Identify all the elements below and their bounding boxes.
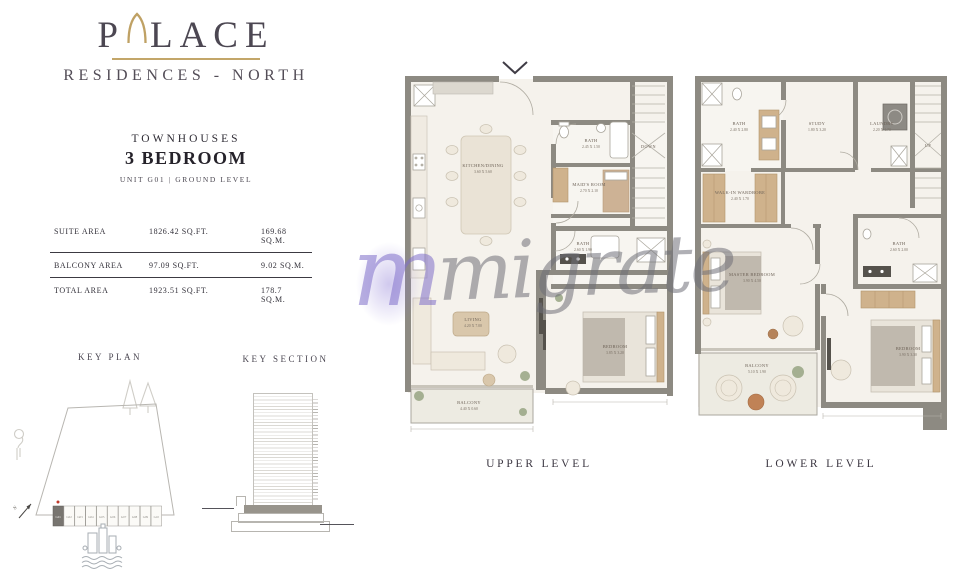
table-row: SUITE AREA 1826.42 SQ.FT. 169.68 SQ.M. xyxy=(50,219,312,253)
svg-text:3.90 X 4.50: 3.90 X 4.50 xyxy=(743,279,761,283)
key-plan-title: KEY PLAN xyxy=(30,352,190,362)
unit-label: G10 xyxy=(154,515,160,519)
svg-text:BEDROOM: BEDROOM xyxy=(896,346,921,351)
key-plan-map: G01 G02 G03 G04 G05 G06 G07 G08 G09 G10 … xyxy=(8,368,198,570)
laundry-fixtures xyxy=(883,104,907,130)
unit-label: G01 xyxy=(56,515,62,519)
brand-word-end: LACE xyxy=(150,17,275,54)
key-section-podium xyxy=(231,521,330,532)
svg-text:3.90 X 3.30: 3.90 X 3.30 xyxy=(899,353,917,357)
upper-level-floor-plan: DOWN xyxy=(405,58,673,438)
svg-text:2.20 X 1.70: 2.20 X 1.70 xyxy=(873,128,891,132)
brand-wordmark: P LACE xyxy=(40,12,332,54)
svg-text:2.60 X 2.00: 2.60 X 2.00 xyxy=(890,248,908,252)
svg-text:LIVING: LIVING xyxy=(464,317,482,322)
entry-arrow-icon xyxy=(503,62,527,73)
site-boundary xyxy=(36,404,174,515)
area-sqft: 1923.51 SQ.FT. xyxy=(149,286,261,304)
leader-line-right xyxy=(320,524,354,525)
svg-text:STUDY: STUDY xyxy=(809,121,826,126)
svg-text:4.40 X 0.60: 4.40 X 0.60 xyxy=(460,407,478,411)
brand-subtitle: RESIDENCES - NORTH xyxy=(40,67,332,85)
area-sqm: 169.68 SQ.M. xyxy=(261,227,308,245)
svg-text:BEDROOM: BEDROOM xyxy=(603,344,628,349)
unit-category: TOWNHOUSES xyxy=(40,133,332,145)
key-section-tower xyxy=(253,393,313,507)
svg-text:2.70 X 2.10: 2.70 X 2.10 xyxy=(580,189,598,193)
key-section-ticks xyxy=(313,397,318,501)
svg-text:KITCHEN/DINING: KITCHEN/DINING xyxy=(462,163,504,168)
unit-row: G01 G02 G03 G04 G05 G06 G07 G08 G09 G10 xyxy=(53,501,162,527)
area-table: SUITE AREA 1826.42 SQ.FT. 169.68 SQ.M. B… xyxy=(50,219,312,311)
table-row: BALCONY AREA 97.09 SQ.FT. 9.02 SQ.M. xyxy=(50,253,312,278)
brand-logo: P LACE RESIDENCES - NORTH xyxy=(40,12,332,85)
svg-text:BALCONY: BALCONY xyxy=(745,363,769,368)
svg-text:BATH: BATH xyxy=(893,241,906,246)
unit-label: G03 xyxy=(77,515,83,519)
svg-text:MAID'S ROOM: MAID'S ROOM xyxy=(572,182,605,187)
unit-header: TOWNHOUSES 3 BEDROOM UNIT G01 | GROUND L… xyxy=(40,133,332,184)
lower-level-caption: LOWER LEVEL xyxy=(690,458,952,470)
svg-text:3.85 X 3.20: 3.85 X 3.20 xyxy=(606,351,624,355)
stairs-label: DOWN xyxy=(641,144,656,149)
svg-text:3.60 X 5.60: 3.60 X 5.60 xyxy=(474,170,492,174)
unit-label: G08 xyxy=(132,515,138,519)
area-label: BALCONY AREA xyxy=(54,261,149,270)
north-arrow-icon: N xyxy=(12,504,31,518)
key-section-title: KEY SECTION xyxy=(213,354,358,364)
flamingo-icon xyxy=(15,430,24,461)
svg-text:5.10 X 1.90: 5.10 X 1.90 xyxy=(748,370,766,374)
svg-text:2.60 X 1.90: 2.60 X 1.90 xyxy=(574,248,592,252)
upper-level-caption: UPPER LEVEL xyxy=(405,458,673,470)
north-label: N xyxy=(12,505,19,512)
pointed-arch-icon xyxy=(125,12,149,51)
area-label: SUITE AREA xyxy=(54,227,149,245)
svg-text:BATH: BATH xyxy=(733,121,746,126)
svg-text:BATH: BATH xyxy=(577,241,590,246)
area-sqm: 178.7 SQ.M. xyxy=(261,286,308,304)
leader-line-left xyxy=(202,508,234,509)
unit-label: G07 xyxy=(121,515,127,519)
balcony-floor xyxy=(411,389,533,423)
city-water-icon xyxy=(82,524,122,569)
svg-text:1.80 X 3.20: 1.80 X 3.20 xyxy=(808,128,826,132)
unit-marker xyxy=(57,501,60,504)
brand-word-start: P xyxy=(97,17,125,54)
trees-icon xyxy=(123,381,156,415)
area-sqft: 1826.42 SQ.FT. xyxy=(149,227,261,245)
svg-text:BATH: BATH xyxy=(585,138,598,143)
table-row: TOTAL AREA 1923.51 SQ.FT. 178.7 SQ.M. xyxy=(50,278,312,311)
svg-text:BALCONY: BALCONY xyxy=(457,400,481,405)
svg-text:MASTER BEDROOM: MASTER BEDROOM xyxy=(729,272,775,277)
svg-text:2.40 X 2.80: 2.40 X 2.80 xyxy=(730,128,748,132)
area-sqm: 9.02 SQ.M. xyxy=(261,261,308,270)
area-label: TOTAL AREA xyxy=(54,286,149,304)
lower-level-floor-plan: UP xyxy=(695,58,947,438)
unit-label: G09 xyxy=(143,515,149,519)
gold-divider xyxy=(112,58,260,60)
area-sqft: 97.09 SQ.FT. xyxy=(149,261,261,270)
unit-info: UNIT G01 | GROUND LEVEL xyxy=(40,175,332,184)
svg-text:LAUNDRY: LAUNDRY xyxy=(870,121,894,126)
wardrobe-strip xyxy=(861,291,915,308)
svg-text:2.45 X 1.50: 2.45 X 1.50 xyxy=(582,145,600,149)
key-section-highlight-band xyxy=(244,505,322,513)
svg-text:WALK-IN WARDROBE: WALK-IN WARDROBE xyxy=(715,190,765,195)
svg-text:4.20 X 7.00: 4.20 X 7.00 xyxy=(464,324,482,328)
shaft-box xyxy=(414,85,435,106)
svg-text:2.40 X 1.70: 2.40 X 1.70 xyxy=(731,197,749,201)
unit-label: G02 xyxy=(66,515,72,519)
stairs-label: UP xyxy=(925,143,932,148)
page-title: 3 BEDROOM xyxy=(40,148,332,169)
unit-label: G06 xyxy=(110,515,116,519)
unit-label: G05 xyxy=(99,515,105,519)
unit-label: G04 xyxy=(88,515,94,519)
